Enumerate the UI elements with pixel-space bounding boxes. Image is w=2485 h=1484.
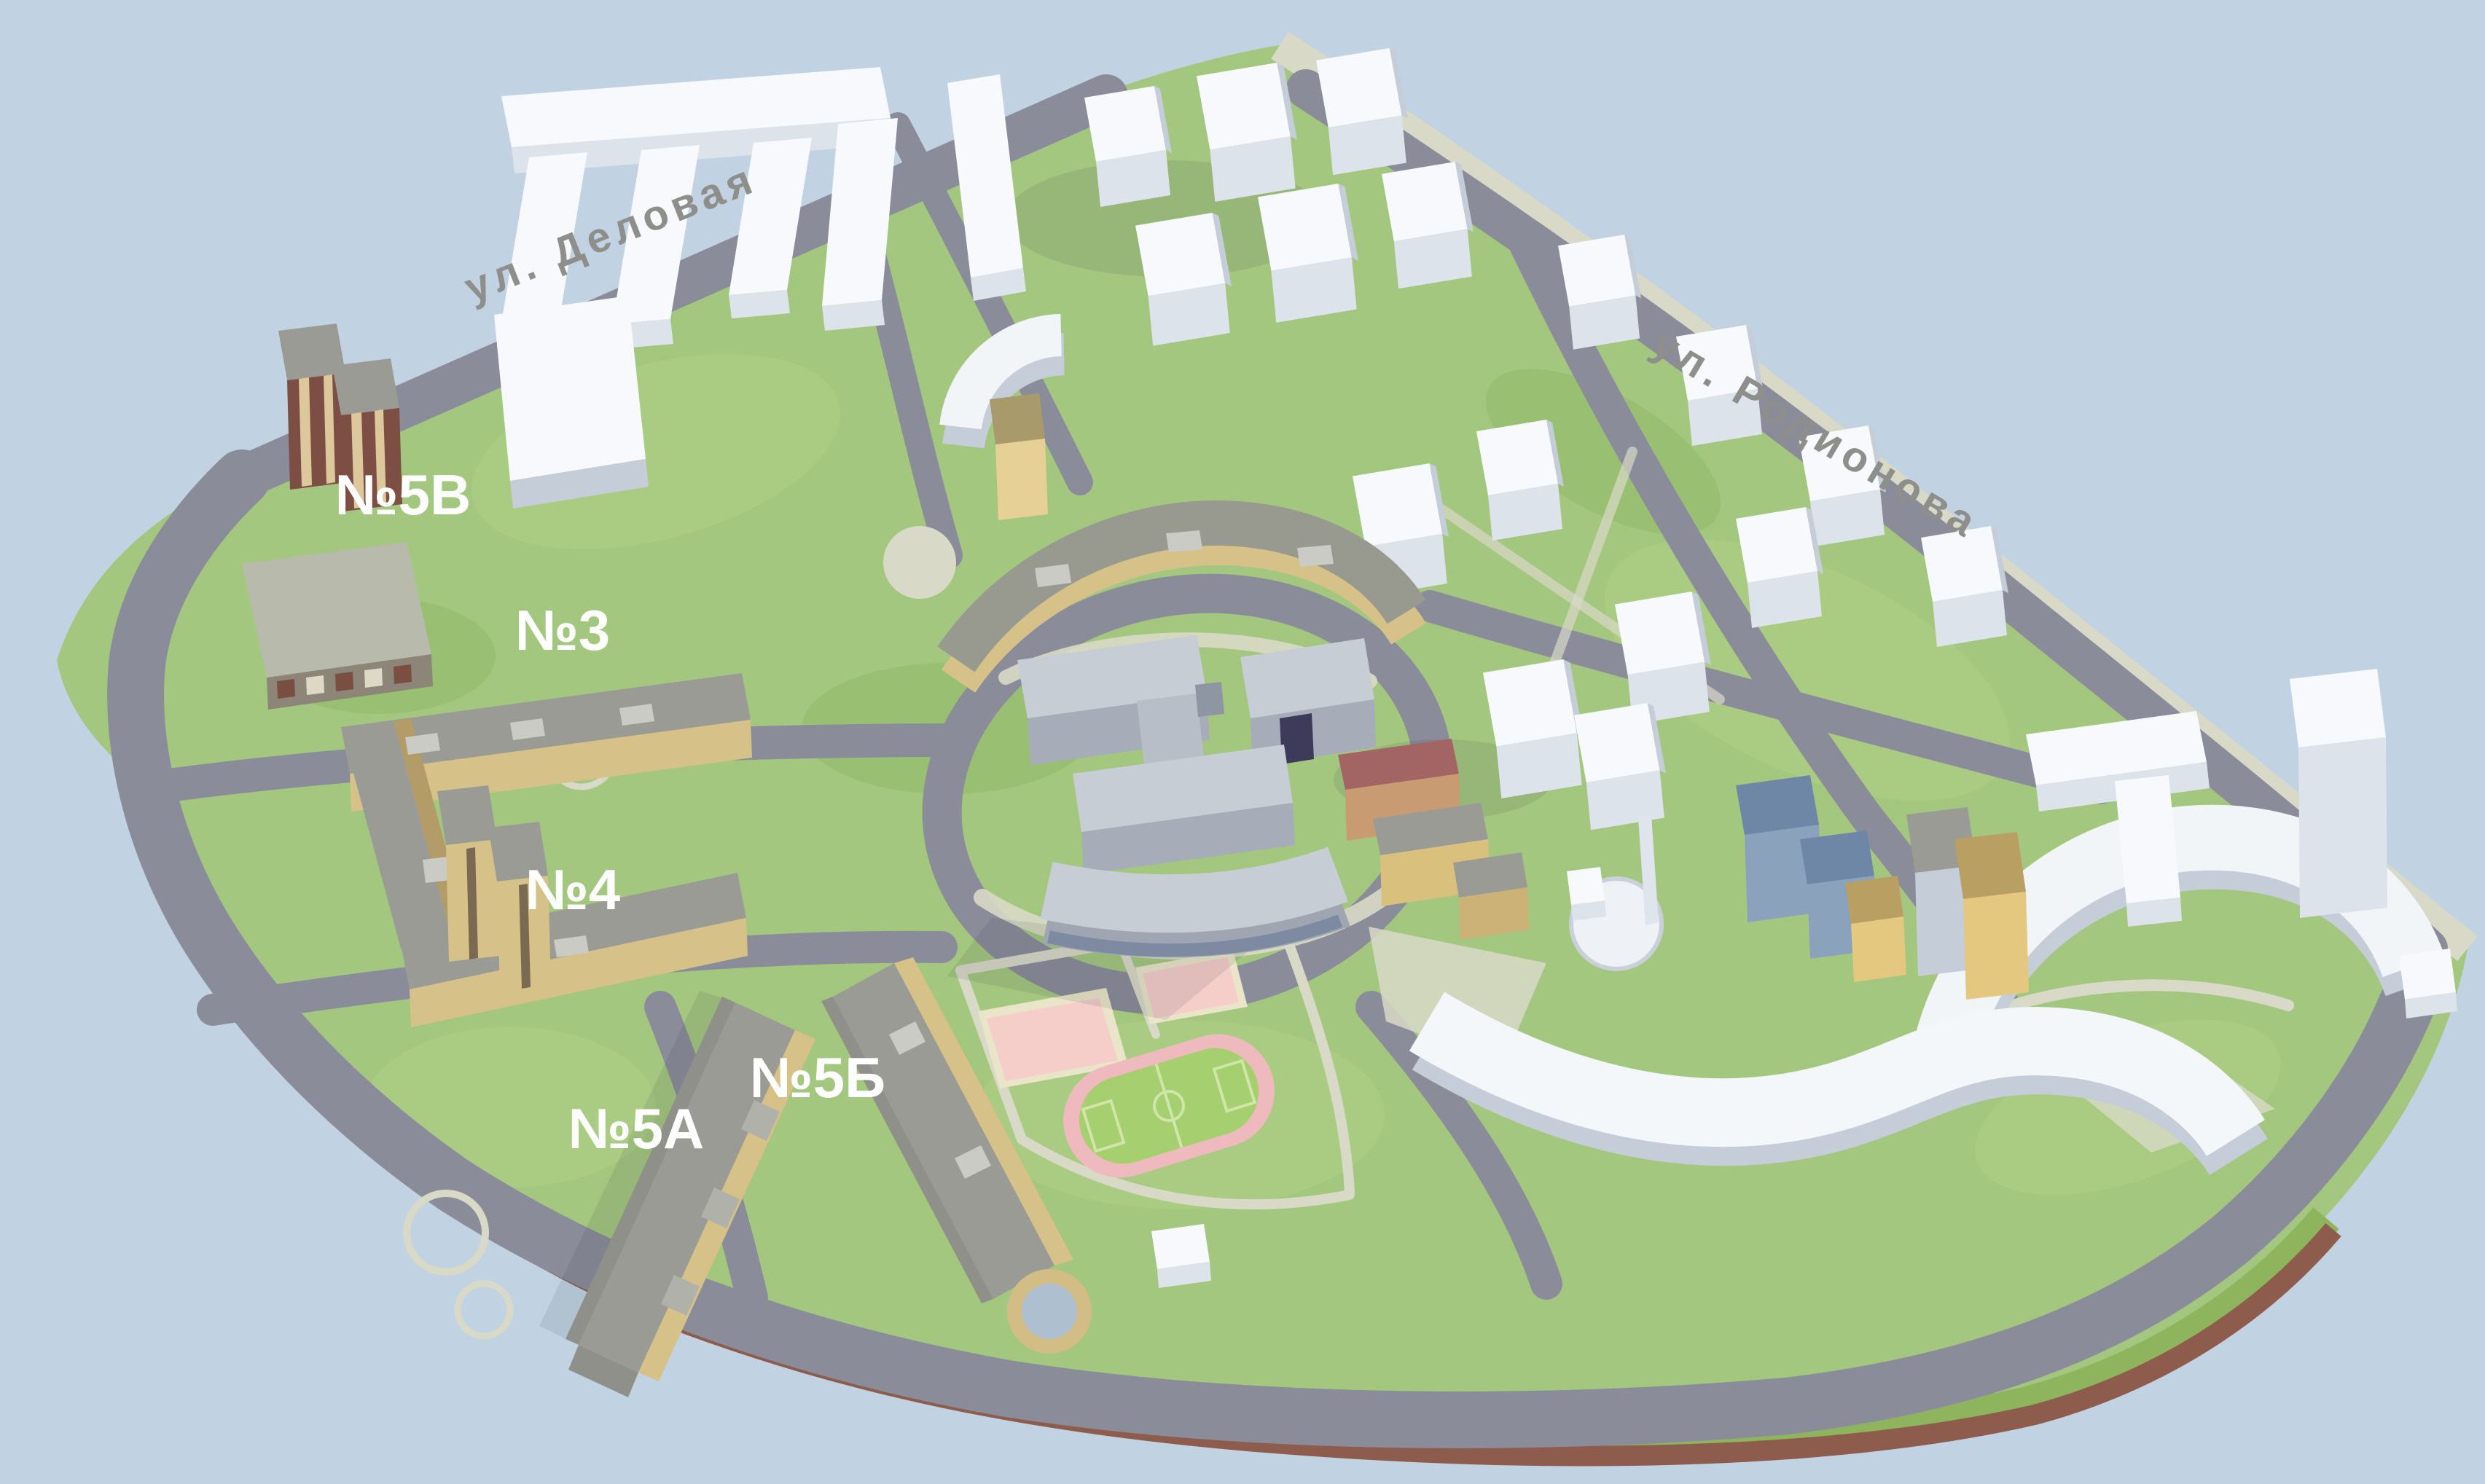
tall-white-tower — [2298, 737, 2387, 918]
site-plan-svg: ул. Деловая ул. Родионова №5В №3 №4 №5А … — [0, 0, 2485, 1484]
yellow-tower-roof — [990, 393, 1045, 444]
building-label-4: №4 — [525, 857, 620, 922]
building-label-5b: №5Б — [750, 1045, 885, 1110]
parking-roof — [242, 542, 431, 678]
parking-garage — [242, 542, 433, 710]
fountain-plaza — [883, 526, 956, 599]
building-label-5v: №5В — [335, 463, 471, 527]
yellow-highrise — [1963, 892, 2029, 1000]
yellow-tower — [995, 439, 1048, 520]
yellow-highrise-roof — [1954, 832, 2026, 899]
tall-white-tower-roof — [2290, 669, 2386, 747]
building-label-5a: №5А — [568, 1096, 705, 1161]
building-label-3: №3 — [515, 598, 610, 662]
small-white-box — [1151, 1224, 1211, 1288]
